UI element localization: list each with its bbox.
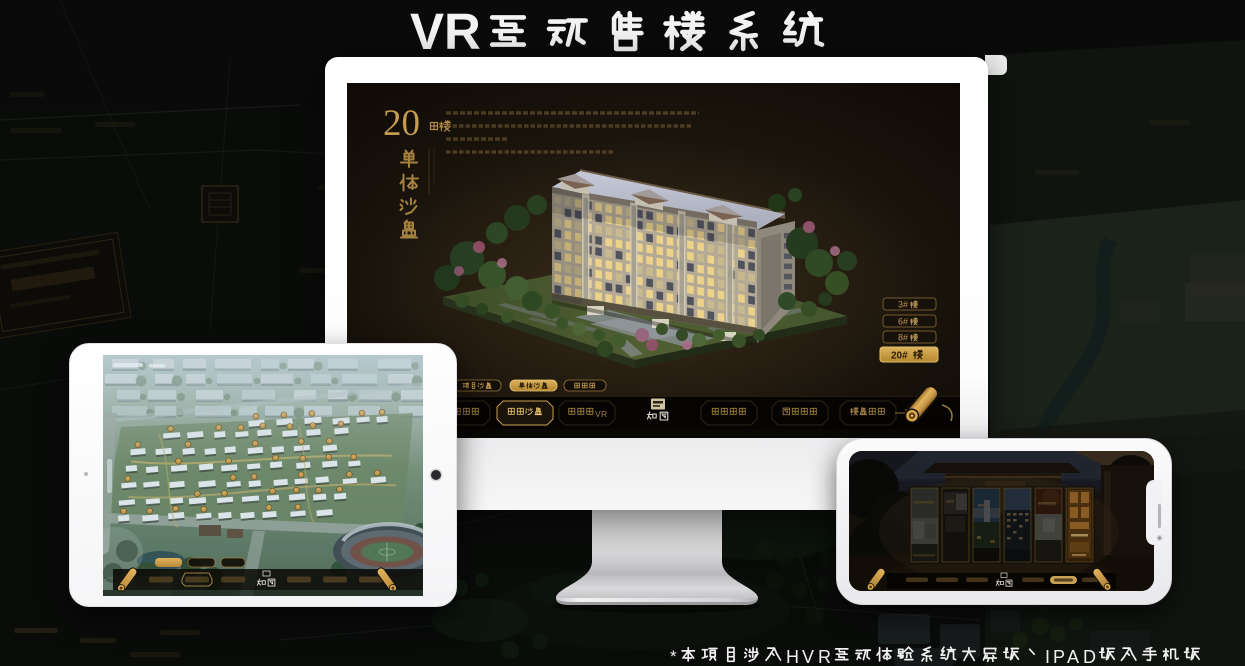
svg-text:*: * [670, 647, 677, 666]
svg-text:20: 20 [383, 103, 420, 144]
svg-text:H: H [786, 647, 799, 666]
svg-text:3#: 3# [898, 300, 908, 310]
svg-text:I: I [1045, 647, 1050, 666]
svg-text:R: R [601, 409, 607, 419]
svg-text:D: D [1083, 647, 1096, 666]
svg-text:R: R [818, 647, 831, 666]
svg-text:8#: 8# [898, 333, 908, 343]
svg-text:V: V [802, 647, 814, 666]
svg-text:VR: VR [410, 3, 481, 58]
svg-text:P: P [1053, 647, 1065, 666]
svg-text:6#: 6# [898, 317, 908, 327]
svg-text:A: A [1067, 647, 1079, 666]
svg-text:20#: 20# [891, 351, 908, 362]
